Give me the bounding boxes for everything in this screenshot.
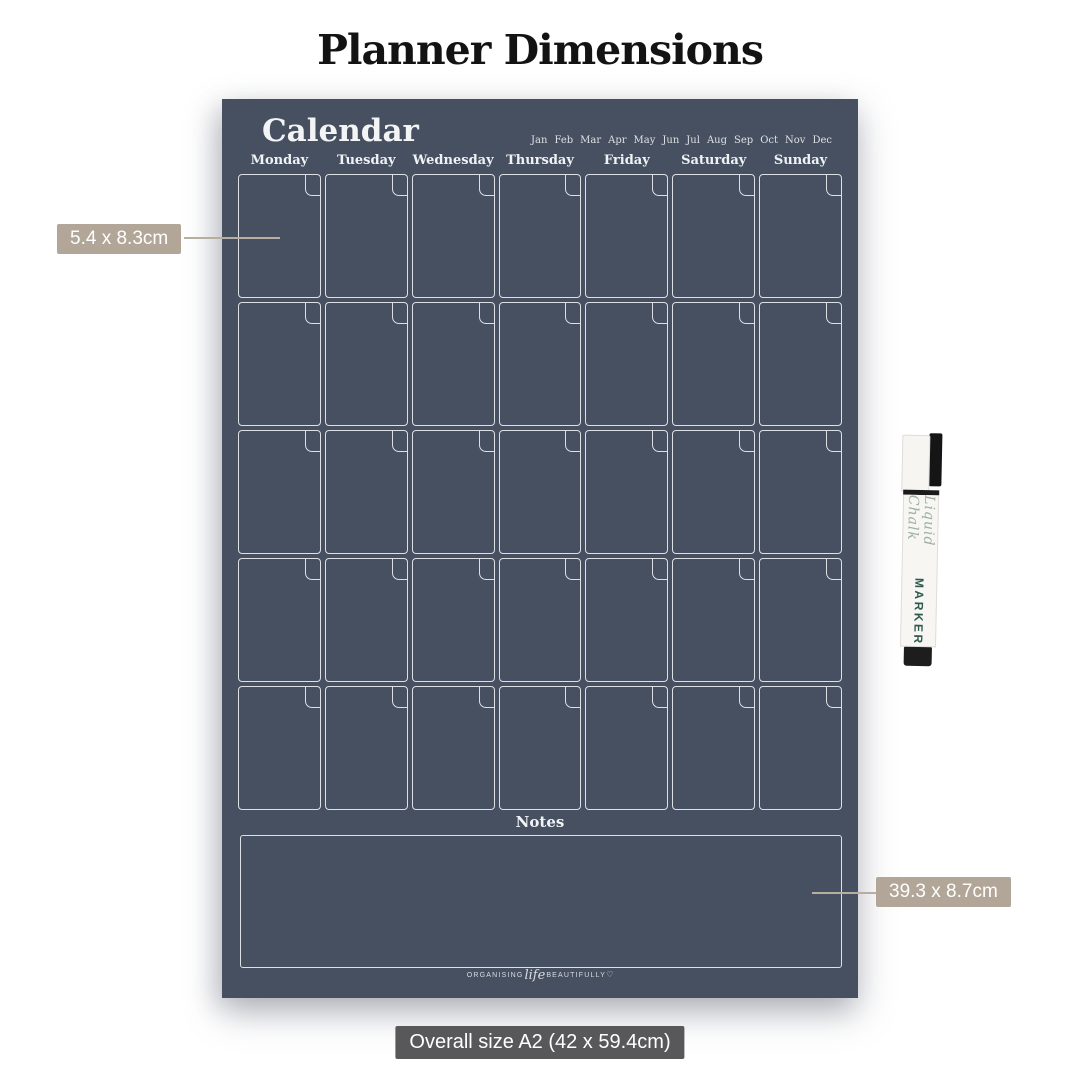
day-cell [585, 430, 668, 554]
month-label: Dec [812, 135, 832, 146]
logo-text-left: ORGANISING [467, 972, 524, 979]
date-tab [826, 303, 841, 324]
day-cell [759, 686, 842, 810]
date-tab [565, 303, 580, 324]
day-cell [672, 302, 755, 426]
day-cell [238, 686, 321, 810]
date-tab [652, 431, 667, 452]
heart-icon: ♡ [606, 970, 613, 979]
page-title: Planner Dimensions [0, 26, 1080, 74]
day-cell [325, 558, 408, 682]
date-tab [739, 303, 754, 324]
date-tab [392, 687, 407, 708]
date-tab [739, 559, 754, 580]
month-label: Jun [662, 135, 679, 146]
day-cell [238, 430, 321, 554]
date-tab [305, 175, 320, 196]
date-tab [479, 303, 494, 324]
notes-title: Notes [222, 813, 858, 831]
date-tab [652, 687, 667, 708]
day-cell [499, 430, 582, 554]
weekday-label: Wednesday [412, 153, 495, 168]
month-label: Mar [580, 135, 601, 146]
day-cell [672, 430, 755, 554]
pen-nib [904, 647, 932, 667]
pen-cap [901, 435, 930, 493]
day-cell [238, 174, 321, 298]
date-tab [565, 175, 580, 196]
weekday-label: Sunday [759, 153, 842, 168]
month-label: Sep [734, 135, 753, 146]
day-cell [759, 558, 842, 682]
planner-board: Calendar JanFebMarAprMayJunJulAugSepOctN… [222, 99, 858, 998]
day-cell [499, 558, 582, 682]
weekday-label: Tuesday [325, 153, 408, 168]
day-cell [412, 430, 495, 554]
overall-size-label: Overall size A2 (42 x 59.4cm) [395, 1026, 684, 1059]
date-tab [479, 687, 494, 708]
notes-box [240, 835, 842, 968]
month-label: Jul [686, 135, 700, 146]
day-cell [672, 558, 755, 682]
weekday-label: Thursday [499, 153, 582, 168]
month-label: Feb [554, 135, 573, 146]
day-cell [238, 558, 321, 682]
day-cell [672, 686, 755, 810]
day-cell [672, 174, 755, 298]
weekday-label: Friday [585, 153, 668, 168]
date-tab [392, 175, 407, 196]
cell-dimension-label: 5.4 x 8.3cm [57, 224, 181, 254]
day-cell [325, 174, 408, 298]
calendar-grid [238, 174, 842, 810]
month-label: May [634, 135, 656, 146]
date-tab [565, 559, 580, 580]
date-tab [652, 175, 667, 196]
day-cell [585, 174, 668, 298]
date-tab [739, 431, 754, 452]
date-tab [392, 559, 407, 580]
date-tab [826, 431, 841, 452]
month-label: Jan [531, 135, 547, 146]
date-tab [305, 687, 320, 708]
notes-dimension-leader-line [812, 892, 876, 894]
brand-logo: ORGANISINGlifeBEAUTIFULLY♡ [222, 968, 858, 983]
calendar-title: Calendar [262, 113, 419, 149]
day-cell [585, 302, 668, 426]
date-tab [739, 175, 754, 196]
day-cell [759, 302, 842, 426]
date-tab [305, 559, 320, 580]
pen-script-label: Liquid Chalk [903, 495, 937, 577]
day-cell [412, 302, 495, 426]
day-cell [759, 430, 842, 554]
chalk-marker-pen: Liquid Chalk MARKER [898, 432, 943, 669]
pen-body: Liquid Chalk MARKER [900, 495, 939, 648]
month-label: Apr [608, 135, 626, 146]
date-tab [652, 303, 667, 324]
date-tab [739, 687, 754, 708]
day-cell [238, 302, 321, 426]
logo-text-right: BEAUTIFULLY [546, 972, 606, 979]
date-tab [305, 303, 320, 324]
day-cell [759, 174, 842, 298]
date-tab [565, 687, 580, 708]
date-tab [565, 431, 580, 452]
day-cell [325, 430, 408, 554]
product-dimensions-image: Planner Dimensions Calendar JanFebMarApr… [0, 0, 1080, 1080]
date-tab [652, 559, 667, 580]
pen-clip [928, 433, 942, 486]
month-label: Aug [707, 135, 727, 146]
day-cell [412, 686, 495, 810]
day-cell [499, 174, 582, 298]
date-tab [826, 175, 841, 196]
day-cell [412, 558, 495, 682]
month-label: Nov [785, 135, 805, 146]
date-tab [392, 431, 407, 452]
date-tab [826, 559, 841, 580]
day-cell [585, 686, 668, 810]
day-cell [499, 686, 582, 810]
weekday-header-row: MondayTuesdayWednesdayThursdayFridaySatu… [238, 153, 842, 168]
date-tab [826, 687, 841, 708]
months-row: JanFebMarAprMayJunJulAugSepOctNovDec [531, 135, 832, 146]
notes-dimension-label: 39.3 x 8.7cm [876, 877, 1011, 907]
day-cell [412, 174, 495, 298]
month-label: Oct [760, 135, 778, 146]
logo-script-word: life [524, 968, 545, 983]
weekday-label: Monday [238, 153, 321, 168]
weekday-label: Saturday [672, 153, 755, 168]
pen-brand-label: MARKER [911, 578, 926, 646]
cell-dimension-leader-line [184, 237, 280, 239]
day-cell [585, 558, 668, 682]
date-tab [392, 303, 407, 324]
day-cell [325, 686, 408, 810]
day-cell [325, 302, 408, 426]
day-cell [499, 302, 582, 426]
date-tab [479, 559, 494, 580]
date-tab [305, 431, 320, 452]
date-tab [479, 175, 494, 196]
date-tab [479, 431, 494, 452]
